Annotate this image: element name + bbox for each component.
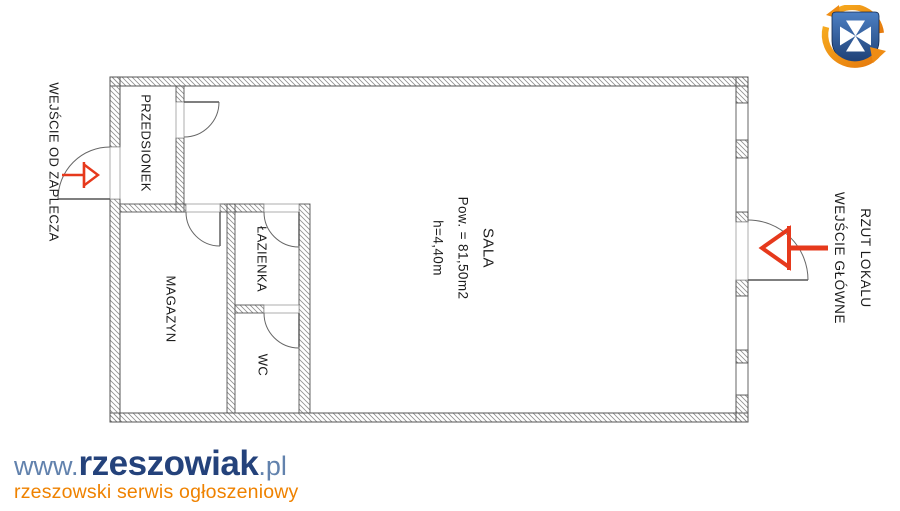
wall-top [110, 77, 748, 86]
room-label-sala-block: SALA Pow. = 81,50m2 h=4,40m [426, 197, 501, 300]
wall-left-lower [110, 199, 120, 422]
back-entrance-label: WEJŚCIE OD ZAPLECZA [47, 82, 62, 241]
floorplan-page: WEJŚCIE OD ZAPLECZA PRZEDSIONEK MAGAZYN … [0, 0, 900, 511]
wall-right-pier [736, 350, 748, 363]
wall-left-upper [110, 77, 120, 147]
room-label-przedsionek: PRZEDSIONEK [139, 94, 154, 192]
rzeszowiak-logo: www.rzeszowiak.pl rzeszowski serwis ogło… [14, 444, 299, 504]
back-entrance-arrow-icon [62, 162, 98, 188]
wall-right-pier [736, 280, 748, 296]
logo-tagline: rzeszowski serwis ogłoszeniowy [14, 481, 299, 504]
wall-right-pier [736, 395, 748, 422]
door-arc [184, 102, 219, 137]
wall-horizontal-a [120, 204, 186, 212]
wall-lazienka-right [299, 204, 310, 413]
wall-bottom [110, 413, 748, 422]
plan-title-block: RZUT LOKALU WEJŚCIE GŁÓWNE [826, 192, 878, 324]
logo-url: www.rzeszowiak.pl [14, 444, 299, 484]
opening-lazienka [264, 204, 299, 212]
logo-tld-suffix: .pl [258, 451, 287, 482]
wall-lazienka-wc-divider [235, 305, 264, 313]
window [736, 103, 748, 140]
window [736, 363, 748, 395]
door-arc [264, 313, 299, 348]
wall-przedsionek-right-upper [176, 86, 184, 102]
sala-area-label: Pow. = 81,50m2 [451, 197, 476, 300]
sala-height-label: h=4,40m [426, 197, 451, 300]
door-arc [186, 212, 220, 246]
window [736, 296, 748, 350]
room-label-sala: SALA [476, 197, 501, 300]
logo-name: rzeszowiak [79, 444, 259, 484]
opening-back-entrance [110, 147, 120, 199]
wall-right-pier [736, 77, 748, 103]
wall-right-pier [736, 140, 748, 158]
wall-przedsionek-right-lower [176, 138, 184, 212]
wall-right-pier [736, 212, 748, 222]
room-label-lazienka: ŁAZIENKA [255, 226, 270, 292]
window [736, 158, 748, 212]
plan-title: RZUT LOKALU [852, 192, 878, 324]
wall-magazyn-right [227, 204, 235, 413]
logo-www-prefix: www. [14, 451, 79, 482]
main-entrance-arrow-icon [762, 226, 828, 270]
main-entrance-label: WEJŚCIE GŁÓWNE [826, 192, 852, 324]
opening-przedsionek [176, 102, 184, 138]
opening-magazyn [186, 204, 220, 212]
opening-main-entrance [736, 222, 748, 280]
opening-wc [264, 305, 299, 313]
room-label-magazyn: MAGAZYN [164, 275, 179, 342]
room-label-wc: WC [256, 354, 271, 376]
rzeszowiak-crest-icon [818, 5, 893, 80]
